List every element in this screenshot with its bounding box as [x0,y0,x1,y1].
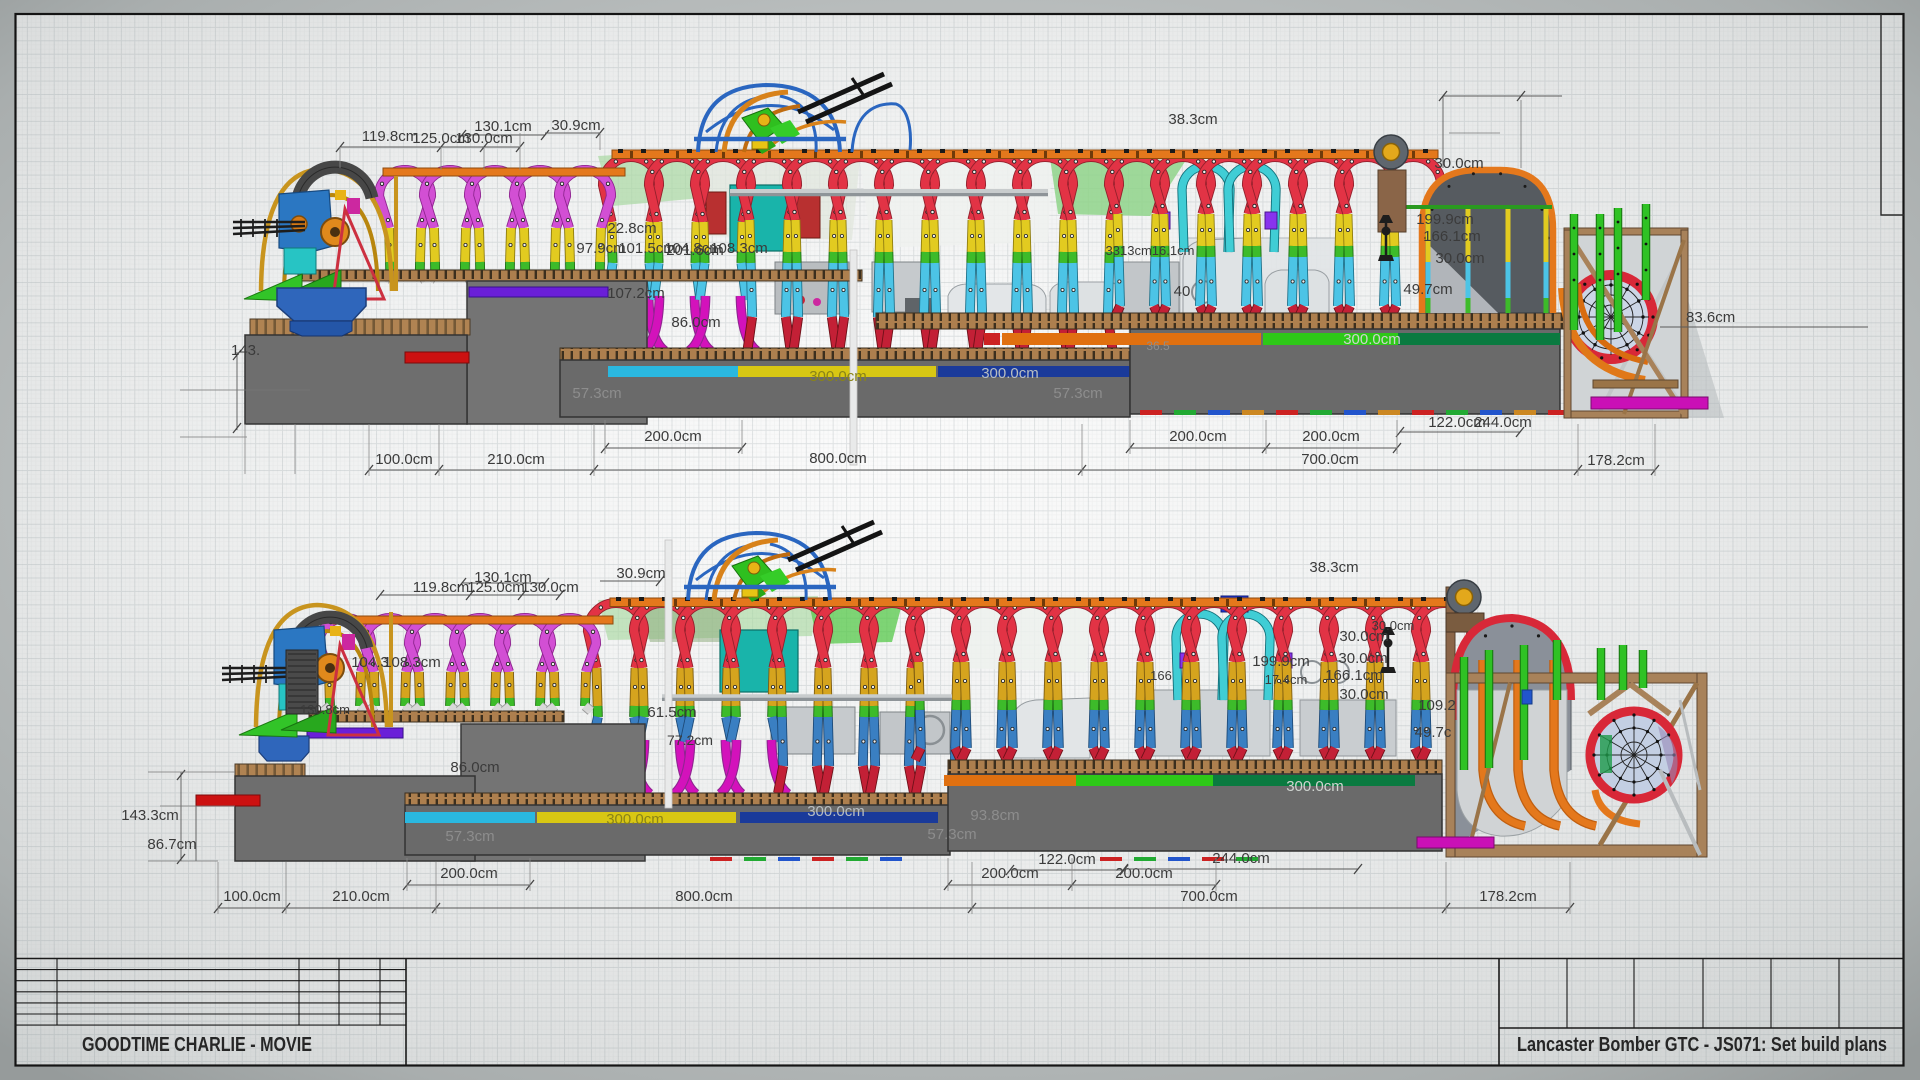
svg-text:143.: 143. [231,342,260,359]
svg-text:700.0cm: 700.0cm [1180,888,1238,905]
svg-text:17.4cm: 17.4cm [1265,672,1308,687]
svg-text:130.8cm: 130.8cm [300,702,350,717]
svg-text:30.0cm: 30.0cm [1372,618,1415,633]
svg-text:200.0cm: 200.0cm [1302,428,1360,445]
svg-text:100.0cm: 100.0cm [223,888,281,905]
svg-text:108.3cm: 108.3cm [383,654,441,671]
svg-text:93.8cm: 93.8cm [970,807,1019,824]
svg-text:300.0cm: 300.0cm [807,803,865,820]
svg-text:61.5cm: 61.5cm [647,704,696,721]
svg-text:244.0cm: 244.0cm [1212,850,1270,867]
svg-text:119.8cm: 119.8cm [413,579,469,596]
svg-text:199.9cm: 199.9cm [1416,211,1474,228]
svg-text:201.6cm: 201.6cm [666,242,724,259]
svg-text:200.0cm: 200.0cm [644,428,702,445]
svg-text:199.9cm: 199.9cm [1252,653,1310,670]
svg-text:30.0cm: 30.0cm [1339,686,1388,703]
svg-text:30.0cm: 30.0cm [1338,650,1387,667]
svg-text:700.0cm: 700.0cm [1301,451,1359,468]
svg-text:122.0cm: 122.0cm [1038,851,1096,868]
svg-text:200.0cm: 200.0cm [1115,865,1173,882]
svg-text:166.1cm: 166.1cm [1325,667,1383,684]
svg-text:210.0cm: 210.0cm [487,451,545,468]
svg-text:77.2cm: 77.2cm [667,732,713,748]
svg-text:109.2: 109.2 [1418,697,1456,714]
svg-text:300.0cm: 300.0cm [1343,331,1401,348]
svg-text:57.3cm: 57.3cm [445,828,494,845]
svg-text:86.7cm: 86.7cm [147,836,196,853]
svg-text:800.0cm: 800.0cm [675,888,733,905]
svg-text:3313cm16.1cm: 3313cm16.1cm [1106,243,1195,258]
svg-text:36.5: 36.5 [1146,339,1170,353]
svg-text:200.0cm: 200.0cm [981,865,1039,882]
svg-text:57.3cm: 57.3cm [572,385,621,402]
svg-text:30.9cm: 30.9cm [551,117,600,134]
svg-text:800.0cm: 800.0cm [809,450,867,467]
svg-text:166: 166 [1150,668,1172,683]
svg-text:300.0cm: 300.0cm [981,365,1039,382]
svg-text:200.0cm: 200.0cm [440,865,498,882]
svg-text:200.0cm: 200.0cm [1169,428,1227,445]
svg-text:119.8cm: 119.8cm [362,128,418,145]
svg-text:30.0cm: 30.0cm [1434,155,1483,172]
svg-text:100.0cm: 100.0cm [375,451,433,468]
svg-text:40: 40 [1174,283,1191,300]
svg-text:178.2cm: 178.2cm [1479,888,1537,905]
svg-text:22.8cm: 22.8cm [607,220,656,237]
svg-text:107.2cm: 107.2cm [607,285,665,302]
svg-text:210.0cm: 210.0cm [332,888,390,905]
svg-text:143.3cm: 143.3cm [121,807,179,824]
svg-text:130.1cm: 130.1cm [474,118,532,135]
svg-text:30.0cm: 30.0cm [1435,250,1484,267]
svg-text:GOODTIME CHARLIE - MOVIE: GOODTIME CHARLIE - MOVIE [82,1034,312,1056]
svg-text:49.7c: 49.7c [1415,724,1452,741]
svg-text:49.7cm: 49.7cm [1403,281,1452,298]
svg-text:166.1cm: 166.1cm [1423,228,1481,245]
svg-text:244.0cm: 244.0cm [1474,414,1532,431]
svg-text:57.3cm: 57.3cm [927,826,976,843]
svg-text:178.2cm: 178.2cm [1587,452,1645,469]
svg-text:300.0cm: 300.0cm [809,368,867,385]
svg-text:38.3cm: 38.3cm [1309,559,1358,576]
svg-text:38.3cm: 38.3cm [1168,111,1217,128]
svg-text:30.9cm: 30.9cm [616,565,665,582]
svg-text:86.0cm: 86.0cm [671,314,720,331]
svg-text:300.0cm: 300.0cm [1286,778,1344,795]
svg-text:130.1cm: 130.1cm [474,569,532,586]
svg-text:83.6cm: 83.6cm [1686,309,1735,326]
svg-text:57.3cm: 57.3cm [1053,385,1102,402]
svg-text:Lancaster Bomber GTC - JS071:: Lancaster Bomber GTC - JS071: Set build … [1517,1034,1887,1056]
svg-text:86.0cm: 86.0cm [450,759,499,776]
svg-text:300.0cm: 300.0cm [606,811,664,828]
